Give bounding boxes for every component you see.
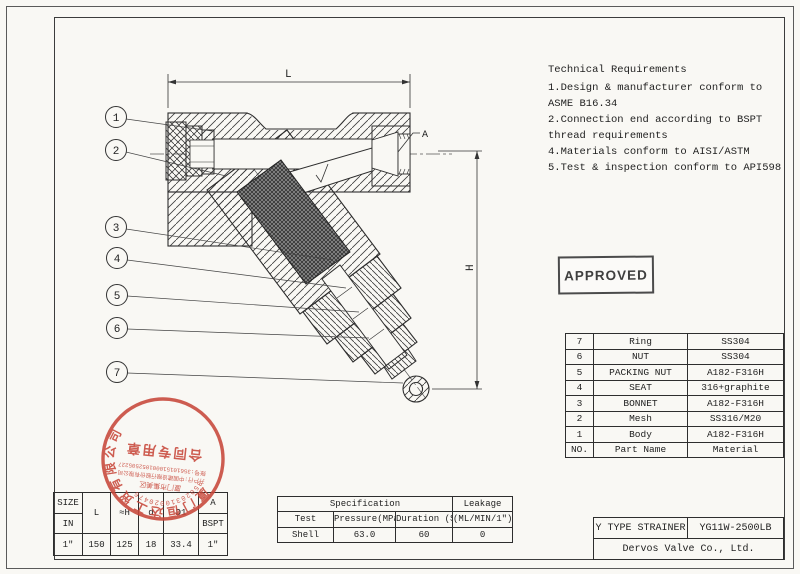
balloon-5: 5 [107, 285, 128, 306]
leakage-title: Leakage [453, 497, 513, 512]
company-name: Dervos Valve Co., Ltd. [594, 539, 784, 560]
part-name: Ring [594, 334, 688, 350]
spec-col-pressure: Pressure(MPa) [334, 512, 396, 527]
table-row: Y TYPE STRAINER YG11W-2500LB [594, 518, 784, 539]
table-row: 5PACKING NUTA182-F316H [566, 365, 784, 381]
part-name: NUT [594, 349, 688, 365]
col-header-part-name: Part Name [594, 442, 688, 458]
balloon-1: 1 [106, 107, 127, 128]
balloon-6: 6 [107, 318, 128, 339]
size-unit: IN [54, 514, 83, 534]
svg-text:3: 3 [113, 223, 120, 235]
spec-val-pressure: 63.0 [334, 527, 396, 542]
item-balloons: 1 2 3 4 5 6 7 [106, 107, 128, 383]
size-val: 1" [54, 534, 83, 556]
part-name: Body [594, 427, 688, 443]
product-title: Y TYPE STRAINER [594, 518, 688, 539]
table-header-row: NO.Part NameMaterial [566, 442, 784, 458]
part-material: SS316/M20 [688, 411, 784, 427]
table-row: Dervos Valve Co., Ltd. [594, 539, 784, 560]
seal-center-text: 合同专用章 [124, 438, 203, 464]
tech-req-item: 5.Test & inspection conform to API598 [548, 160, 783, 176]
svg-text:1: 1 [113, 113, 120, 125]
table-header-row: Test Pressure(MPa) Duration (S) (ML/MIN/… [278, 512, 513, 527]
ring-handle [403, 376, 429, 402]
spec-val-test: Shell [278, 527, 334, 542]
part-name: SEAT [594, 380, 688, 396]
part-material: A182-F316H [688, 365, 784, 381]
spec-val-leak: 0 [453, 527, 513, 542]
part-material: SS304 [688, 334, 784, 350]
part-material: 316+graphite [688, 380, 784, 396]
part-no: 4 [566, 380, 594, 396]
table-row: 6NUTSS304 [566, 349, 784, 365]
part-no: 1 [566, 427, 594, 443]
dim-label-H: H [465, 264, 477, 271]
table-row: 2MeshSS316/M20 [566, 411, 784, 427]
spec-title: Specification [278, 497, 453, 512]
spec-col-duration: Duration (S) [396, 512, 453, 527]
table-row: 1BodyA182-F316H [566, 427, 784, 443]
size-header: SIZE [54, 493, 83, 514]
tech-req-item: 4.Materials conform to AISI/ASTM [548, 144, 783, 160]
part-material: A182-F316H [688, 396, 784, 412]
size-val: 150 [83, 534, 111, 556]
part-name: BONNET [594, 396, 688, 412]
svg-text:7: 7 [114, 368, 121, 380]
approved-label: APPROVED [564, 267, 648, 283]
svg-text:6: 6 [114, 324, 121, 336]
balloon-3: 3 [106, 217, 127, 238]
size-val: 125 [111, 534, 139, 556]
company-seal-stamp: 厦门恒达工贸有限公司 35020310020476 厦门市集美区 开户行:中国建… [93, 389, 233, 529]
spec-col-test: Test [278, 512, 334, 527]
table-row: 4SEAT316+graphite [566, 380, 784, 396]
part-name: PACKING NUT [594, 365, 688, 381]
table-row: Shell 63.0 60 0 [278, 527, 513, 542]
balloon-4: 4 [107, 248, 128, 269]
part-material: SS304 [688, 349, 784, 365]
dim-label-A: A [422, 130, 428, 141]
table-row: 1" 150 125 18 33.4 1" [54, 534, 228, 556]
dim-label-L: L [285, 69, 292, 81]
size-val: 33.4 [164, 534, 199, 556]
svg-text:2: 2 [113, 146, 120, 158]
drawing-sheet: L H A 1 2 3 4 5 6 7 [0, 0, 800, 574]
part-no: 5 [566, 365, 594, 381]
table-row: 7RingSS304 [566, 334, 784, 350]
title-block: Y TYPE STRAINER YG11W-2500LB Dervos Valv… [593, 517, 784, 560]
spec-col-leak-unit: (ML/MIN/1") [453, 512, 513, 527]
balloon-2: 2 [106, 140, 127, 161]
part-no: 2 [566, 411, 594, 427]
balloon-7: 7 [107, 362, 128, 383]
tech-req-item: 2.Connection end according to BSPT threa… [548, 112, 783, 144]
model-number: YG11W-2500LB [688, 518, 784, 539]
part-no: 3 [566, 396, 594, 412]
table-header-row: Specification Leakage [278, 497, 513, 512]
size-val: 1" [199, 534, 228, 556]
part-name: Mesh [594, 411, 688, 427]
part-no: 7 [566, 334, 594, 350]
svg-text:4: 4 [114, 254, 121, 266]
tech-req-item: 1.Design & manufacturer conform to ASME … [548, 80, 783, 112]
spec-val-duration: 60 [396, 527, 453, 542]
col-header-no: NO. [566, 442, 594, 458]
svg-text:5: 5 [114, 291, 121, 303]
tech-req-title: Technical Requirements [548, 62, 783, 78]
col-header-material: Material [688, 442, 784, 458]
parts-table: 7RingSS304 6NUTSS304 5PACKING NUTA182-F3… [565, 333, 784, 458]
specification-table: Specification Leakage Test Pressure(MPa)… [277, 496, 513, 543]
table-row: 3BONNETA182-F316H [566, 396, 784, 412]
technical-requirements: Technical Requirements 1.Design & manufa… [548, 62, 783, 176]
part-no: 6 [566, 349, 594, 365]
approved-stamp: APPROVED [558, 255, 654, 294]
size-val: 18 [139, 534, 164, 556]
part-material: A182-F316H [688, 427, 784, 443]
